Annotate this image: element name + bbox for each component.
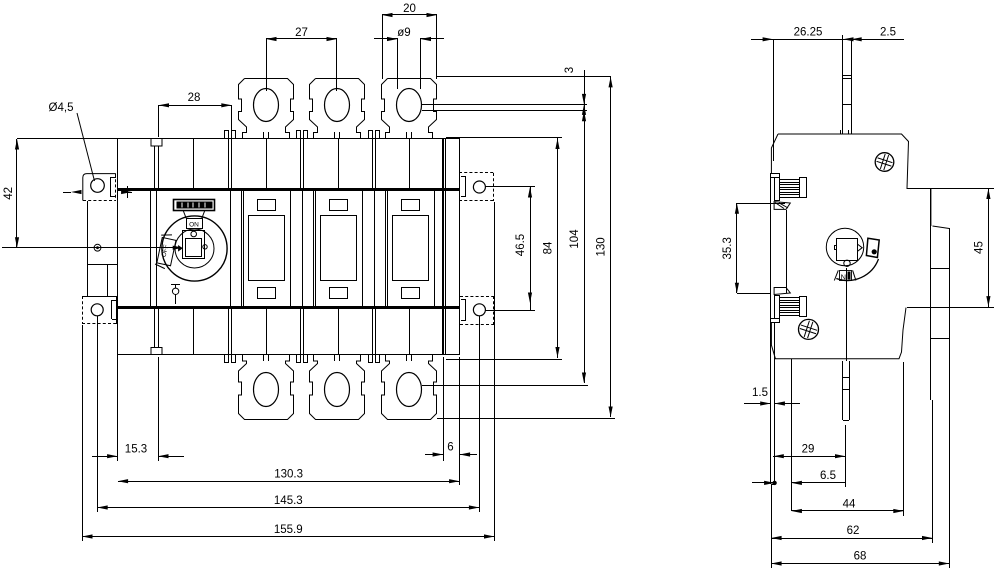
svg-text:20: 20 [403,3,416,15]
svg-text:6: 6 [447,442,453,454]
svg-text:130.3: 130.3 [274,469,303,481]
svg-text:N: N [841,272,846,281]
svg-text:ø9: ø9 [397,27,410,39]
svg-text:27: 27 [295,27,308,39]
svg-text:2.5: 2.5 [880,27,896,39]
svg-text:35.3: 35.3 [722,237,734,259]
svg-text:3: 3 [564,67,576,73]
svg-text:45: 45 [973,241,985,254]
svg-text:155.9: 155.9 [274,524,303,536]
svg-text:ON: ON [189,221,199,228]
svg-text:Ø4,5: Ø4,5 [49,102,74,114]
svg-text:1.5: 1.5 [752,387,768,399]
svg-text:28: 28 [188,92,201,104]
svg-text:104: 104 [569,229,581,249]
svg-text:46.5: 46.5 [515,234,527,256]
svg-text:15.3: 15.3 [125,444,147,456]
svg-text:68: 68 [854,551,867,563]
svg-text:26.25: 26.25 [794,27,823,39]
svg-text:62: 62 [847,525,860,537]
svg-text:6.5: 6.5 [820,470,836,482]
svg-text:145.3: 145.3 [274,495,303,507]
svg-text:84: 84 [543,241,555,254]
svg-text:44: 44 [843,499,856,511]
svg-text:29: 29 [802,444,815,456]
svg-text:130: 130 [596,237,608,256]
svg-text:42: 42 [3,187,15,200]
